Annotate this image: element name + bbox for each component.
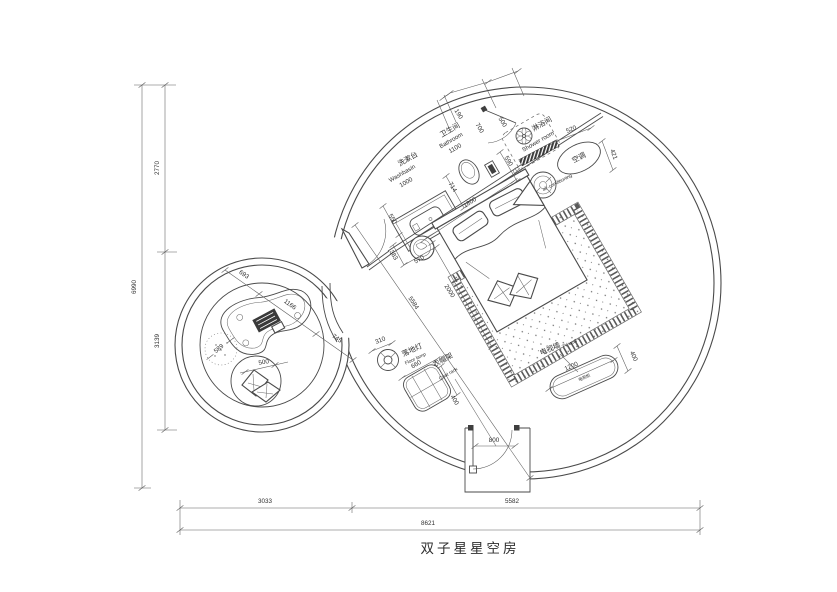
dim-left-top: 2770: [154, 161, 161, 176]
entry-vestibule: 800: [465, 425, 530, 492]
dim-bottom-left: 3033: [258, 498, 273, 505]
door-post-right: [514, 425, 520, 431]
dim-bottom-right: 5582: [505, 498, 520, 505]
dim-left-total: 6990: [131, 280, 138, 295]
door-post-left: [468, 425, 474, 431]
floor-plan-sheet: 800 空调 air-conditioning: [0, 0, 837, 592]
pod-room-wall: [175, 258, 349, 432]
dim-left-bottom: 3139: [154, 334, 161, 349]
dim-bottom-total: 8621: [421, 520, 436, 527]
sheet-title: 双子星星空房: [421, 541, 520, 556]
floor-plan-drawing: 800 空调 air-conditioning: [0, 0, 837, 592]
